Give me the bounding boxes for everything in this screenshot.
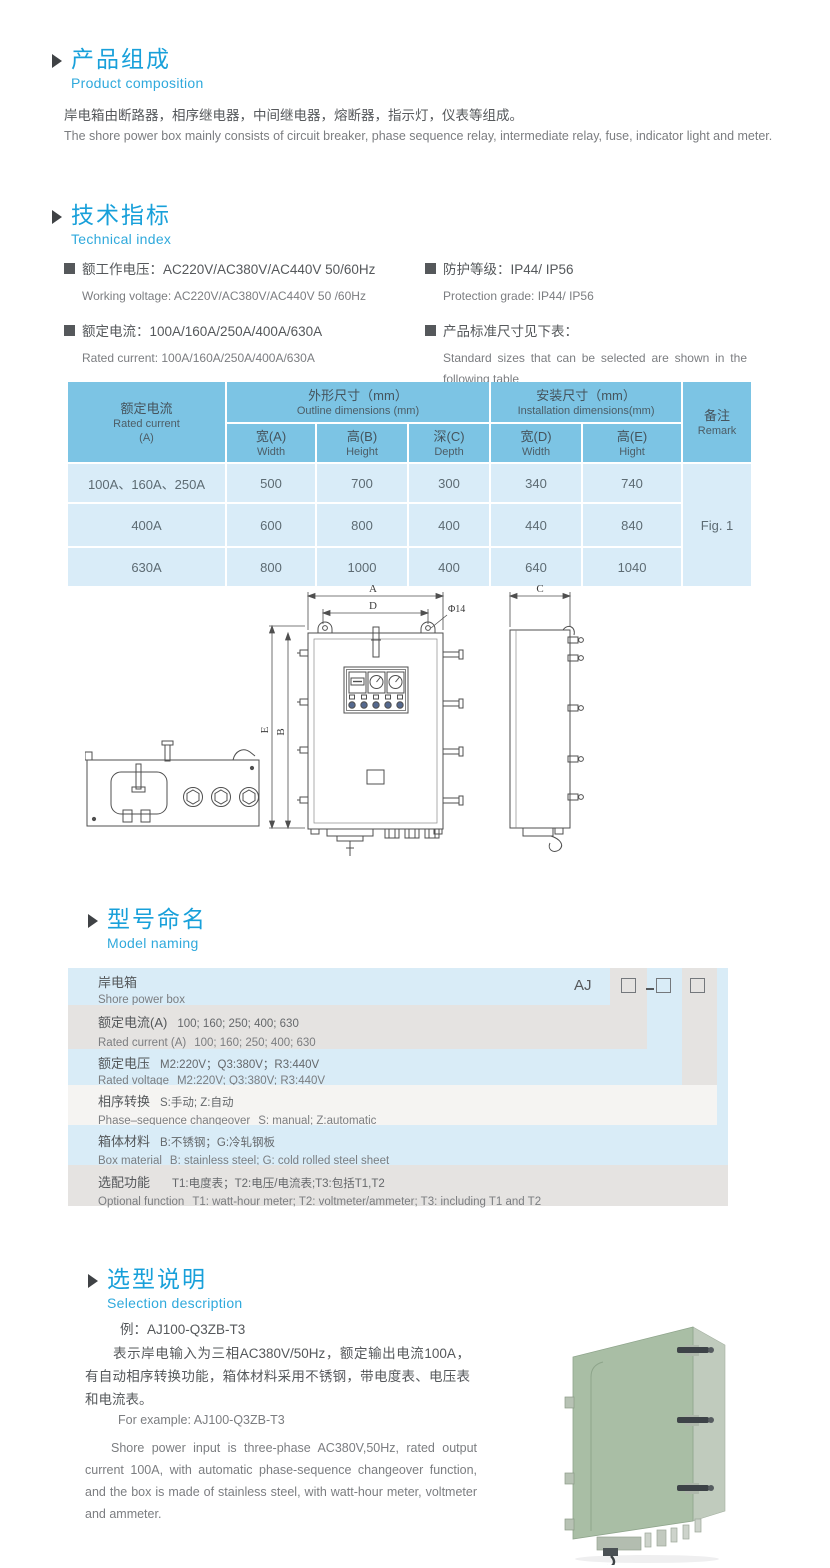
model-row-detail-cn: 100; 160; 250; 400; 630 — [177, 1018, 299, 1030]
section-title-cn: 选型说明 — [107, 1266, 243, 1292]
tech-bullet: 额工作电压：AC220V/AC380V/AC440V 50/60Hz Worki… — [64, 258, 422, 307]
cell-value: 600 — [227, 504, 315, 546]
header-cn: 备注 — [684, 407, 750, 424]
model-row-shore-power-box: 岸电箱 Shore power box — [68, 968, 610, 1005]
header-en: Hight — [584, 445, 680, 459]
model-box-icon — [656, 978, 671, 993]
dim-label-a: A — [369, 583, 377, 595]
cell-value: 700 — [317, 464, 407, 502]
cell-remark: Fig. 1 — [683, 464, 751, 586]
cell-current: 100A、160A、250A — [68, 464, 225, 502]
bullet-text-en: Protection grade: IP44/ IP56 — [443, 286, 747, 307]
indicator-lights — [349, 695, 403, 708]
table-header-outline-group: 外形尺寸（mm） Outline dimensions (mm) — [227, 382, 489, 422]
square-bullet-icon — [64, 263, 75, 274]
model-row-optional-function: 选配功能T1:电度表；T2:电压/电流表;T3:包括T1,T2 Optional… — [68, 1165, 728, 1206]
model-box-icon — [690, 978, 705, 993]
model-row-label-cn: 岸电箱 — [98, 975, 137, 990]
size-table: 额定电流 Rated current (A) 外形尺寸（mm） Outline … — [66, 380, 753, 588]
composition-text-cn: 岸电箱由断路器，相序继电器，中间继电器，熔断器，指示灯，仪表等组成。 — [64, 104, 784, 124]
table-subheader-width-d: 宽(D) Width — [491, 424, 581, 462]
cell-value: 300 — [409, 464, 489, 502]
section-title-cn: 型号命名 — [107, 906, 207, 932]
square-bullet-icon — [425, 263, 436, 274]
model-row-rated-voltage: 额定电压M2:220V；Q3:380V；R3:440V Rated voltag… — [68, 1049, 682, 1085]
table-subheader-depth-c: 深(C) Depth — [409, 424, 489, 462]
dimension-drawing: A D Φ14 E B C — [85, 582, 730, 882]
square-bullet-icon — [425, 325, 436, 336]
section-title-en: Technical index — [71, 231, 171, 247]
model-box-icon — [621, 978, 636, 993]
cell-current: 630A — [68, 548, 225, 586]
cell-current: 400A — [68, 504, 225, 546]
cell-value: 340 — [491, 464, 581, 502]
cell-value: 1000 — [317, 548, 407, 586]
cell-value: 840 — [583, 504, 681, 546]
model-row-detail-cn: S:手动; Z:自动 — [160, 1097, 233, 1109]
section-title-cn: 产品组成 — [71, 46, 204, 72]
header-en: Installation dimensions(mm) — [492, 404, 680, 418]
model-row-label-cn: 选配功能 — [98, 1175, 150, 1190]
tech-bullet: 防护等级：IP44/ IP56 Protection grade: IP44/ … — [425, 258, 747, 307]
hinges — [443, 650, 463, 805]
cell-value: 1040 — [583, 548, 681, 586]
section-title-en: Selection description — [107, 1295, 243, 1311]
header-cn: 外形尺寸（mm） — [228, 387, 488, 404]
header-cn: 高(E) — [584, 428, 680, 445]
header-unit: (A) — [69, 431, 224, 445]
section-technical-index-header: 技术指标 Technical index — [52, 202, 171, 247]
bottom-view-drawing — [85, 741, 259, 826]
catalog-page: { "colors": { "accent_blue": "#18a0da", … — [0, 0, 830, 1568]
header-en: Rated current — [69, 417, 224, 431]
header-cn: 安装尺寸（mm） — [492, 387, 680, 404]
cable-glands — [385, 829, 439, 838]
header-cn: 深(C) — [410, 428, 488, 445]
model-step-strip — [717, 968, 728, 1125]
bullet-text-cn: 额工作电压：AC220V/AC380V/AC440V 50/60Hz — [82, 258, 375, 278]
selection-example-en: For example: AJ100-Q3ZB-T3 — [118, 1413, 285, 1427]
model-dash-box — [646, 978, 671, 998]
section-product-composition-header: 产品组成 Product composition — [52, 46, 204, 91]
bullet-text-cn: 产品标准尺寸见下表： — [443, 320, 578, 340]
table-subheader-width-a: 宽(A) Width — [227, 424, 315, 462]
selection-paragraph-en: Shore power input is three-phase AC380V,… — [85, 1437, 477, 1525]
tech-index-left-column: 额工作电压：AC220V/AC380V/AC440V 50/60Hz Worki… — [64, 258, 422, 382]
cell-value: 740 — [583, 464, 681, 502]
cell-value: 800 — [227, 548, 315, 586]
model-row-box-material: 箱体材料B:不锈钢；G:冷轧钢板 Box materialB: stainles… — [68, 1125, 728, 1165]
cell-value: 400 — [409, 548, 489, 586]
side-view-drawing — [510, 626, 583, 851]
dim-label-d: D — [369, 600, 377, 612]
dim-label-b: B — [275, 728, 287, 735]
header-en: Height — [318, 445, 406, 459]
dim-label-c: C — [536, 583, 543, 595]
header-en: Depth — [410, 445, 488, 459]
header-en: Width — [228, 445, 314, 459]
front-view-drawing — [297, 622, 463, 856]
bullet-text-cn: 防护等级：IP44/ IP56 — [443, 258, 574, 278]
model-naming-diagram: 岸电箱 Shore power box 额定电流(A)100; 160; 250… — [68, 968, 728, 1206]
model-row-label-en: Optional function — [98, 1196, 184, 1208]
cell-value: 800 — [317, 504, 407, 546]
header-en: Width — [492, 445, 580, 459]
table-row: 100A、160A、250A 500 700 300 340 740 Fig. … — [68, 464, 751, 502]
cell-value: 440 — [491, 504, 581, 546]
cell-value: 500 — [227, 464, 315, 502]
cell-value: 400 — [409, 504, 489, 546]
section-title-en: Product composition — [71, 75, 204, 91]
section-arrow-icon — [52, 210, 62, 224]
section-selection-description-header: 选型说明 Selection description — [88, 1266, 243, 1311]
table-header-installation-group: 安装尺寸（mm） Installation dimensions(mm) — [491, 382, 681, 422]
table-subheader-hight-e: 高(E) Hight — [583, 424, 681, 462]
selection-paragraph-cn: 表示岸电输入为三相AC380V/50Hz，额定输出电流100A，有自动相序转换功… — [85, 1342, 470, 1411]
model-row-detail-en: T1: watt-hour meter; T2: voltmeter/ammet… — [192, 1196, 541, 1208]
bullet-text-en: Rated current: 100A/160A/250A/400A/630A — [82, 348, 422, 369]
bullet-text-en: Working voltage: AC220V/AC380V/AC440V 50… — [82, 286, 422, 307]
composition-text-en: The shore power box mainly consists of c… — [64, 129, 804, 143]
door-bolts — [297, 650, 308, 803]
header-cn: 额定电流 — [69, 400, 224, 417]
tech-bullet: 额定电流：100A/160A/250A/400A/630A Rated curr… — [64, 320, 422, 369]
table-header-rated-current: 额定电流 Rated current (A) — [68, 382, 225, 462]
model-row-phase-sequence: 相序转换S:手动; Z:自动 Phase–sequence changeover… — [68, 1085, 717, 1125]
model-row-rated-current: 额定电流(A)100; 160; 250; 400; 630 Rated cur… — [68, 1005, 647, 1049]
meter-panel — [344, 667, 408, 713]
section-arrow-icon — [88, 1274, 98, 1288]
section-model-naming-header: 型号命名 Model naming — [88, 906, 207, 951]
table-header-remark: 备注 Remark — [683, 382, 751, 462]
header-cn: 高(B) — [318, 428, 406, 445]
product-photo — [545, 1305, 785, 1565]
model-row-label-cn: 箱体材料 — [98, 1134, 150, 1149]
table-row: 400A 600 800 400 440 840 — [68, 504, 751, 546]
cell-value: 640 — [491, 548, 581, 586]
model-row-detail-cn: B:不锈钢；G:冷轧钢板 — [160, 1137, 275, 1149]
model-row-label-cn: 额定电压 — [98, 1056, 150, 1071]
dash-icon — [646, 988, 654, 990]
dim-label-e: E — [259, 726, 271, 733]
dim-label-phi14: Φ14 — [448, 604, 465, 615]
header-en: Remark — [684, 424, 750, 438]
section-arrow-icon — [52, 54, 62, 68]
model-row-detail-cn: M2:220V；Q3:380V；R3:440V — [160, 1059, 319, 1071]
table-subheader-height-b: 高(B) Height — [317, 424, 407, 462]
section-arrow-icon — [88, 914, 98, 928]
selection-example-cn: 例：AJ100-Q3ZB-T3 — [120, 1318, 245, 1338]
model-code-prefix: AJ — [574, 977, 592, 994]
square-bullet-icon — [64, 325, 75, 336]
model-row-label-en: Rated current (A) — [98, 1037, 186, 1049]
header-cn: 宽(A) — [228, 428, 314, 445]
section-title-cn: 技术指标 — [71, 202, 171, 228]
header-en: Outline dimensions (mm) — [228, 404, 488, 418]
section-title-en: Model naming — [107, 935, 207, 951]
header-cn: 宽(D) — [492, 428, 580, 445]
bullet-text-cn: 额定电流：100A/160A/250A/400A/630A — [82, 320, 322, 340]
table-row: 630A 800 1000 400 640 1040 — [68, 548, 751, 586]
model-row-label-cn: 相序转换 — [98, 1094, 150, 1109]
model-row-detail-cn: T1:电度表；T2:电压/电流表;T3:包括T1,T2 — [172, 1178, 385, 1190]
model-row-detail-en: 100; 160; 250; 400; 630 — [194, 1037, 316, 1049]
model-row-label-cn: 额定电流(A) — [98, 1015, 167, 1030]
